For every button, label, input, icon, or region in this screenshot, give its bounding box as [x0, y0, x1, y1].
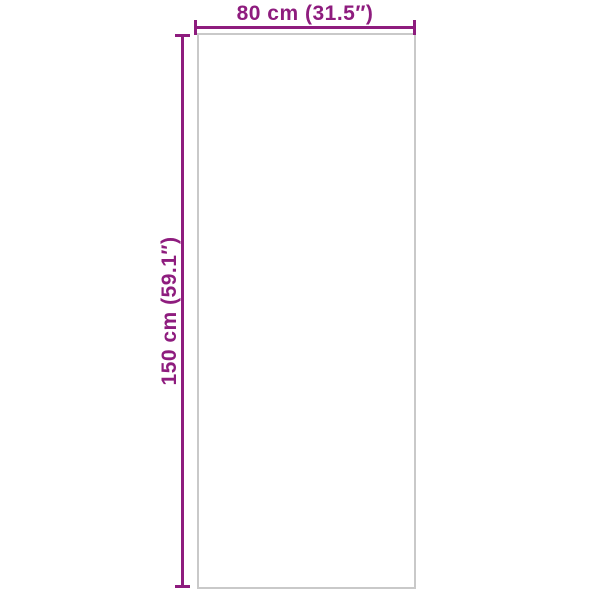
- product-outline-rectangle: [197, 33, 416, 589]
- height-dimension-tick-bottom: [175, 585, 190, 588]
- width-dimension-line: [194, 26, 416, 29]
- height-dimension-label: 150 cm (59.1″): [158, 237, 182, 386]
- width-dimension-label: 80 cm (31.5″): [194, 2, 416, 26]
- height-dimension-tick-top: [175, 34, 190, 37]
- dimension-diagram: 80 cm (31.5″) 150 cm (59.1″): [0, 0, 600, 600]
